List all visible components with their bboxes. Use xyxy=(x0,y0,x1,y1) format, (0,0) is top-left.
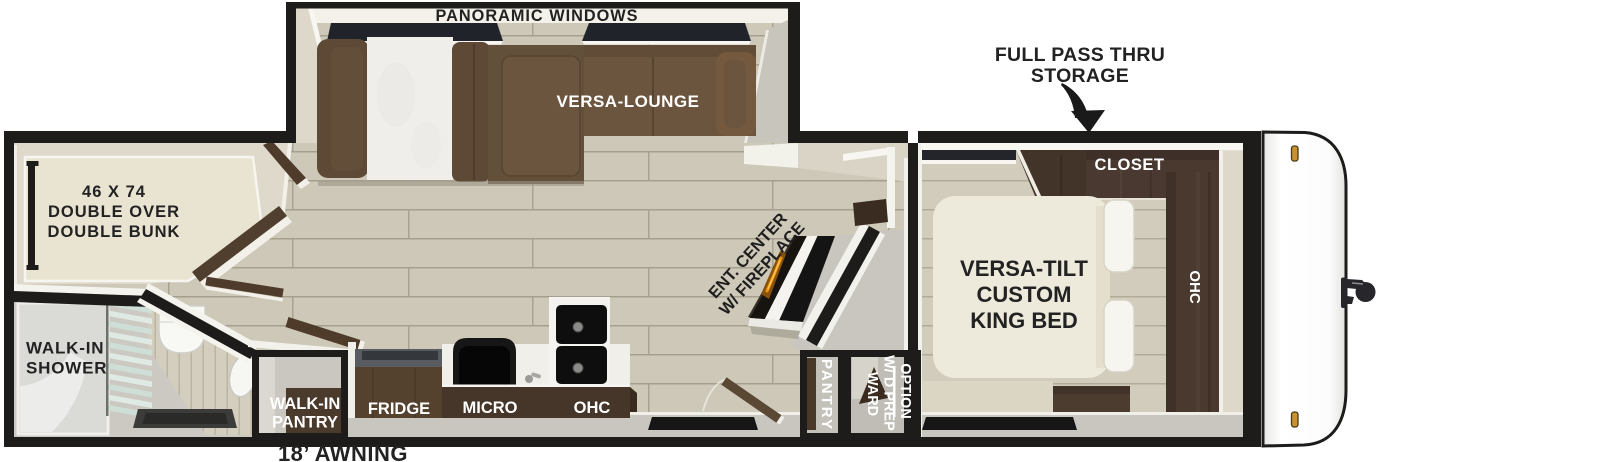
svg-text:FULL PASS THRU: FULL PASS THRU xyxy=(995,44,1165,66)
svg-text:PANTRY: PANTRY xyxy=(272,414,338,432)
svg-text:OHC: OHC xyxy=(1186,270,1203,304)
svg-text:OPTION: OPTION xyxy=(897,363,913,419)
svg-text:OHC: OHC xyxy=(574,399,611,417)
svg-text:PANORAMIC WINDOWS: PANORAMIC WINDOWS xyxy=(435,7,638,25)
svg-text:CUSTOM: CUSTOM xyxy=(977,282,1072,307)
svg-text:STORAGE: STORAGE xyxy=(1031,65,1129,87)
svg-text:MICRO: MICRO xyxy=(463,399,518,417)
svg-text:WALK-IN: WALK-IN xyxy=(270,395,341,413)
svg-text:DOUBLE OVER: DOUBLE OVER xyxy=(48,203,180,221)
svg-text:WARD: WARD xyxy=(864,372,880,416)
svg-text:DOUBLE BUNK: DOUBLE BUNK xyxy=(48,223,181,241)
svg-text:VERSA-TILT: VERSA-TILT xyxy=(960,256,1088,281)
svg-text:46 X 74: 46 X 74 xyxy=(82,183,146,201)
svg-text:FRIDGE: FRIDGE xyxy=(368,400,430,418)
svg-text:18’ AWNING: 18’ AWNING xyxy=(278,441,408,462)
svg-text:VERSA-LOUNGE: VERSA-LOUNGE xyxy=(557,92,700,111)
svg-text:KING BED: KING BED xyxy=(970,308,1078,333)
svg-text:CLOSET: CLOSET xyxy=(1095,156,1165,174)
svg-text:PANTRY: PANTRY xyxy=(818,359,835,431)
svg-text:SHOWER: SHOWER xyxy=(26,359,107,378)
svg-text:WALK-IN: WALK-IN xyxy=(26,339,104,358)
